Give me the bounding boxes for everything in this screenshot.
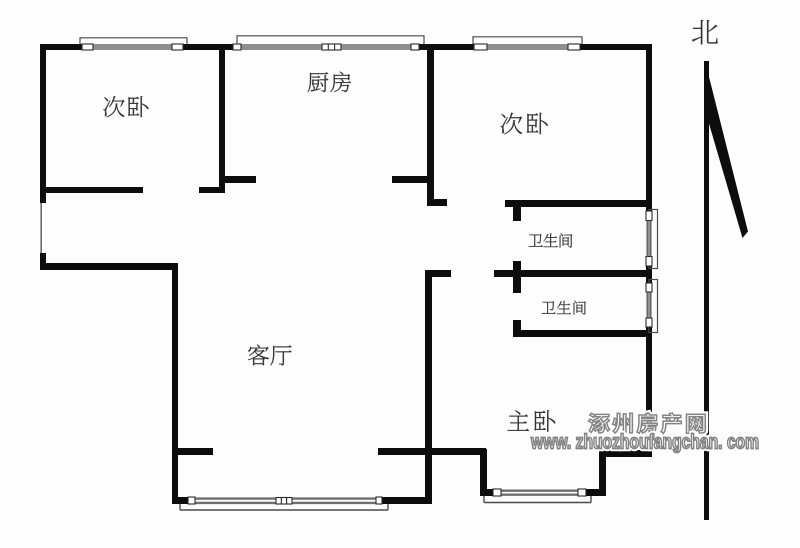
svg-text:www. zhuozhoufangchan. com: www. zhuozhoufangchan. com (530, 432, 759, 454)
